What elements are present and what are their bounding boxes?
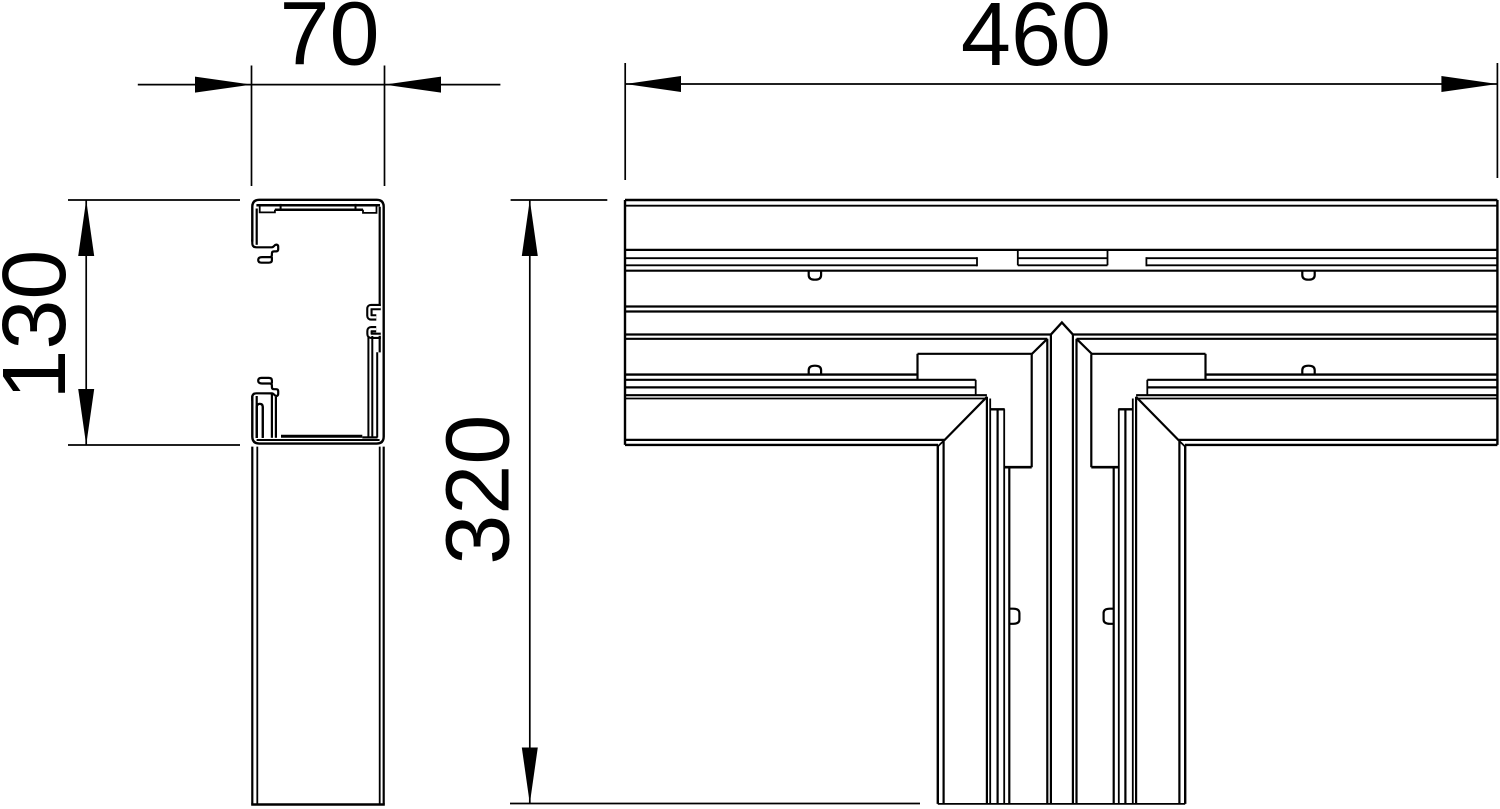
svg-text:70: 70 — [279, 0, 379, 85]
svg-text:130: 130 — [0, 250, 85, 400]
svg-text:320: 320 — [429, 415, 529, 565]
svg-text:460: 460 — [961, 0, 1111, 85]
